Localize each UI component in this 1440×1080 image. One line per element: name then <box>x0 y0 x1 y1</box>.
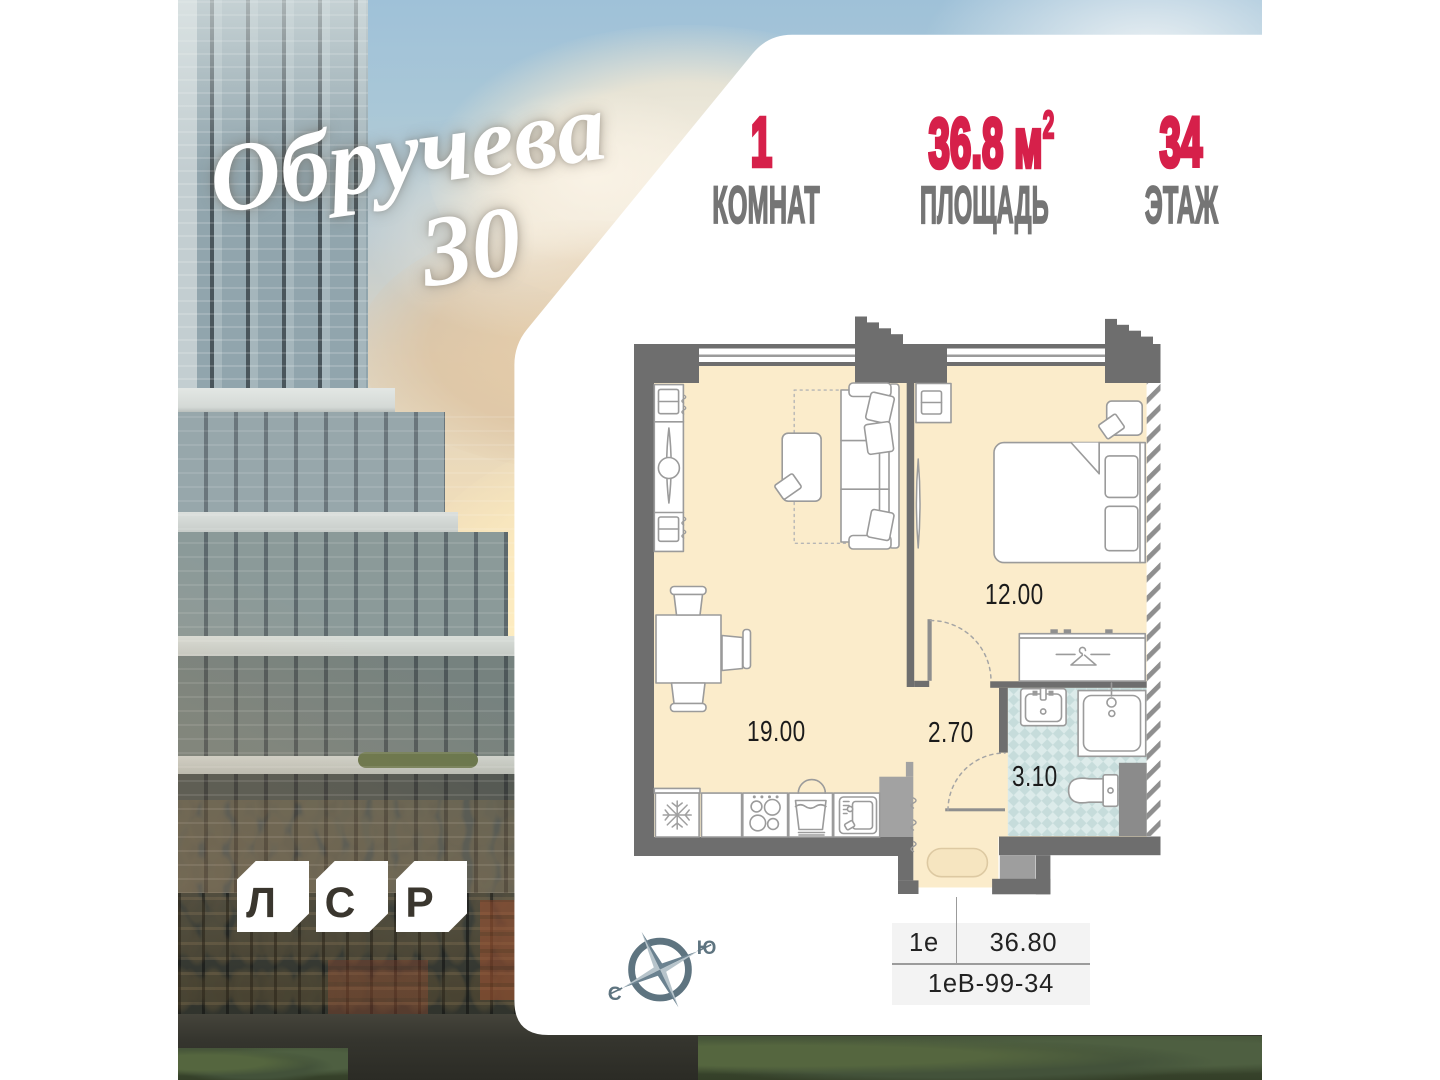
svg-text:Ю: Ю <box>697 938 717 959</box>
svg-text:С: С <box>608 984 622 1005</box>
